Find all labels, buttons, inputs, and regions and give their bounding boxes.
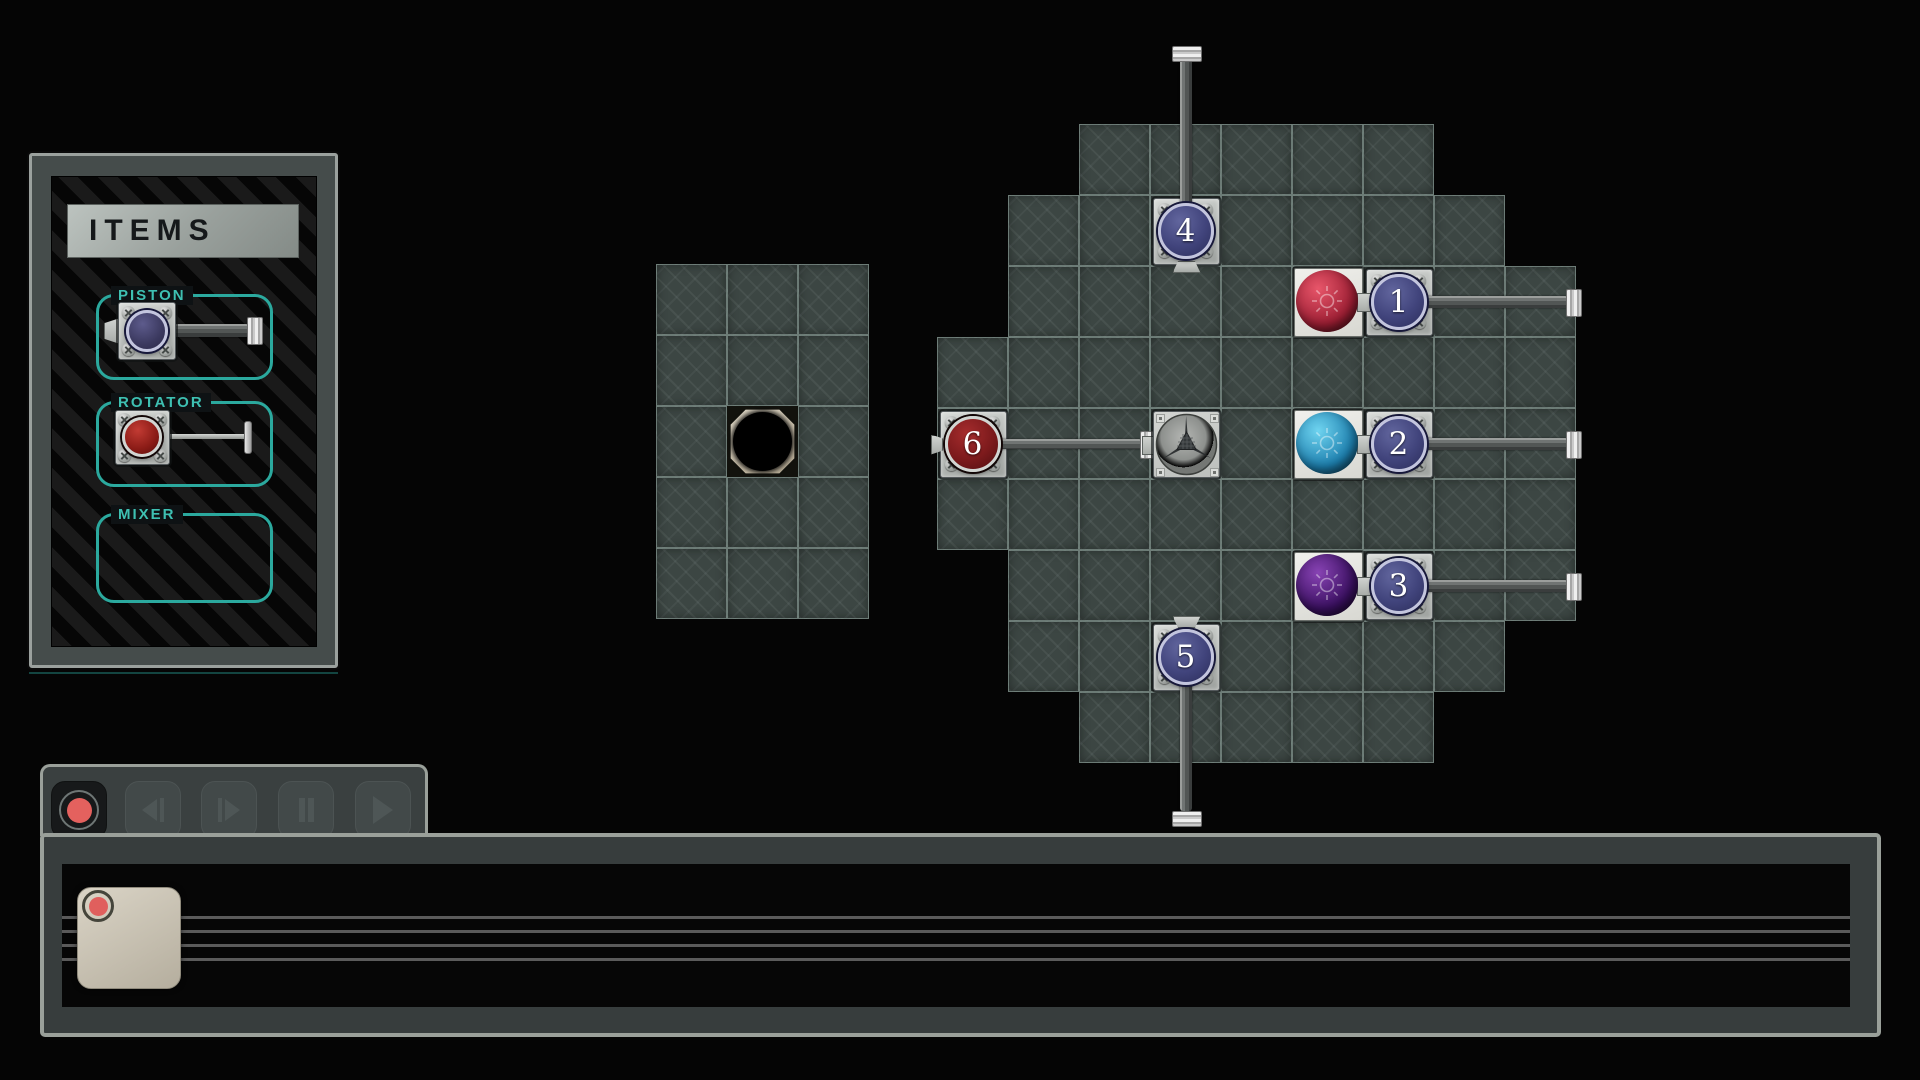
fan-icon xyxy=(1154,412,1219,477)
items-panel: ITEMS PISTON ROTATOR MIXER xyxy=(29,153,338,668)
main-board-tile[interactable] xyxy=(1150,266,1221,337)
main-board-tile[interactable] xyxy=(1008,337,1079,408)
record-button[interactable] xyxy=(51,781,107,839)
piston-sample-orb xyxy=(126,310,168,352)
sun-icon xyxy=(1296,412,1358,474)
main-board-tile[interactable] xyxy=(937,337,1008,408)
left-board-tile[interactable] xyxy=(798,477,869,548)
piston-rod-cap xyxy=(1566,431,1582,459)
main-board-tile[interactable] xyxy=(1079,195,1150,266)
sun-icon xyxy=(1296,554,1358,616)
left-board-tile[interactable] xyxy=(656,477,727,548)
left-board-tile[interactable] xyxy=(727,264,798,335)
main-board-tile[interactable] xyxy=(1363,337,1434,408)
play-button[interactable] xyxy=(355,781,411,839)
node-5-button[interactable]: 5 xyxy=(1158,629,1214,685)
main-board-tile[interactable] xyxy=(1150,550,1221,621)
rotator-sample-needle-head xyxy=(244,421,252,454)
main-board-tile[interactable] xyxy=(1292,337,1363,408)
left-board-tile[interactable] xyxy=(727,548,798,619)
orb-purple[interactable] xyxy=(1296,554,1358,616)
timeline-card[interactable] xyxy=(77,887,181,989)
hole-icon xyxy=(733,412,792,471)
main-board-tile[interactable] xyxy=(1008,479,1079,550)
main-board-tile[interactable] xyxy=(1079,479,1150,550)
main-board-tile[interactable] xyxy=(1221,124,1292,195)
main-board-tile[interactable] xyxy=(1221,337,1292,408)
main-board-tile[interactable] xyxy=(1434,479,1505,550)
orb-connector xyxy=(1357,577,1371,596)
record-icon xyxy=(59,790,99,830)
piston-sample-rod-cap xyxy=(247,317,263,345)
fan-plate[interactable] xyxy=(1153,411,1220,478)
main-board-tile[interactable] xyxy=(1221,408,1292,479)
main-board-tile[interactable] xyxy=(1363,195,1434,266)
main-board-tile[interactable] xyxy=(1221,266,1292,337)
main-board-tile[interactable] xyxy=(1363,692,1434,763)
main-board-tile[interactable] xyxy=(1150,337,1221,408)
pause-icon xyxy=(299,798,305,822)
main-board-tile[interactable] xyxy=(1008,550,1079,621)
main-board-tile[interactable] xyxy=(1079,692,1150,763)
rotator-sample-orb xyxy=(122,417,162,457)
node-6-button[interactable]: 6 xyxy=(945,416,1001,472)
left-board-tile[interactable] xyxy=(798,548,869,619)
step-forward-button[interactable] xyxy=(201,781,257,839)
pause-button[interactable] xyxy=(278,781,334,839)
items-panel-shadow-line xyxy=(29,672,338,674)
left-board-tile[interactable] xyxy=(798,406,869,477)
main-board-tile[interactable] xyxy=(1079,337,1150,408)
main-board-tile[interactable] xyxy=(1221,195,1292,266)
step-forward-icon xyxy=(225,799,240,821)
main-board-tile[interactable] xyxy=(1008,621,1079,692)
node-2-button[interactable]: 2 xyxy=(1371,416,1427,472)
step-back-button[interactable] xyxy=(125,781,181,839)
item-group-mixer-label: MIXER xyxy=(111,505,183,524)
rotator-sample-needle xyxy=(168,434,246,439)
item-group-mixer: MIXER xyxy=(96,513,273,603)
game-stage: ITEMS PISTON ROTATOR MIXER 123456 xyxy=(0,0,1920,1080)
timeline-panel xyxy=(40,833,1881,1037)
main-board-tile[interactable] xyxy=(1292,692,1363,763)
main-board-tile[interactable] xyxy=(1292,124,1363,195)
record-dot-icon xyxy=(82,890,114,922)
sun-icon xyxy=(1296,270,1358,332)
items-panel-title: ITEMS xyxy=(67,204,299,258)
main-board-tile[interactable] xyxy=(1079,550,1150,621)
piston-sample-rod xyxy=(174,324,249,337)
orb-connector xyxy=(1357,435,1371,454)
piston-rod-cap xyxy=(1172,46,1202,62)
left-board-tile[interactable] xyxy=(656,548,727,619)
main-board-tile[interactable] xyxy=(1363,621,1434,692)
main-board-tile[interactable] xyxy=(1008,195,1079,266)
main-board-tile[interactable] xyxy=(1221,621,1292,692)
node-1-button[interactable]: 1 xyxy=(1371,274,1427,330)
node-4-button[interactable]: 4 xyxy=(1158,203,1214,259)
play-icon xyxy=(373,796,393,824)
transport-bar xyxy=(40,764,428,836)
left-board-tile[interactable] xyxy=(656,335,727,406)
main-board-tile[interactable] xyxy=(1505,479,1576,550)
left-board-tile[interactable] xyxy=(727,335,798,406)
left-board-tile[interactable] xyxy=(656,264,727,335)
main-board-tile[interactable] xyxy=(1221,479,1292,550)
main-board-tile[interactable] xyxy=(1363,479,1434,550)
orb-connector xyxy=(1357,293,1371,312)
main-board-tile[interactable] xyxy=(1221,550,1292,621)
left-board-tile[interactable] xyxy=(798,335,869,406)
hole-cell[interactable] xyxy=(727,406,798,477)
main-board-tile[interactable] xyxy=(1292,621,1363,692)
orb-cyan[interactable] xyxy=(1296,412,1358,474)
main-board-tile[interactable] xyxy=(1079,266,1150,337)
main-board-tile[interactable] xyxy=(1434,621,1505,692)
main-board-tile[interactable] xyxy=(1434,337,1505,408)
piston-rod-cap xyxy=(1566,289,1582,317)
main-board-tile[interactable] xyxy=(1505,337,1576,408)
timeline-track[interactable] xyxy=(62,864,1850,1007)
main-board-tile[interactable] xyxy=(1079,124,1150,195)
main-board-tile[interactable] xyxy=(937,479,1008,550)
left-board-tile[interactable] xyxy=(656,406,727,477)
items-panel-background: ITEMS PISTON ROTATOR MIXER xyxy=(51,176,317,647)
main-board-tile[interactable] xyxy=(1363,124,1434,195)
node-3-button[interactable]: 3 xyxy=(1371,558,1427,614)
left-board-tile[interactable] xyxy=(798,264,869,335)
orb-red[interactable] xyxy=(1296,270,1358,332)
piston-rod-cap xyxy=(1172,811,1202,827)
main-board-tile[interactable] xyxy=(1150,479,1221,550)
main-board-tile[interactable] xyxy=(1434,195,1505,266)
main-board-tile[interactable] xyxy=(1292,479,1363,550)
main-board-tile[interactable] xyxy=(1292,195,1363,266)
left-board-tile[interactable] xyxy=(727,477,798,548)
main-board-tile[interactable] xyxy=(1008,266,1079,337)
timeline-staff-lines xyxy=(62,916,1850,962)
step-back-icon xyxy=(142,799,157,821)
main-board-tile[interactable] xyxy=(1221,692,1292,763)
main-board-tile[interactable] xyxy=(1079,621,1150,692)
piston-rod-cap xyxy=(1566,573,1582,601)
